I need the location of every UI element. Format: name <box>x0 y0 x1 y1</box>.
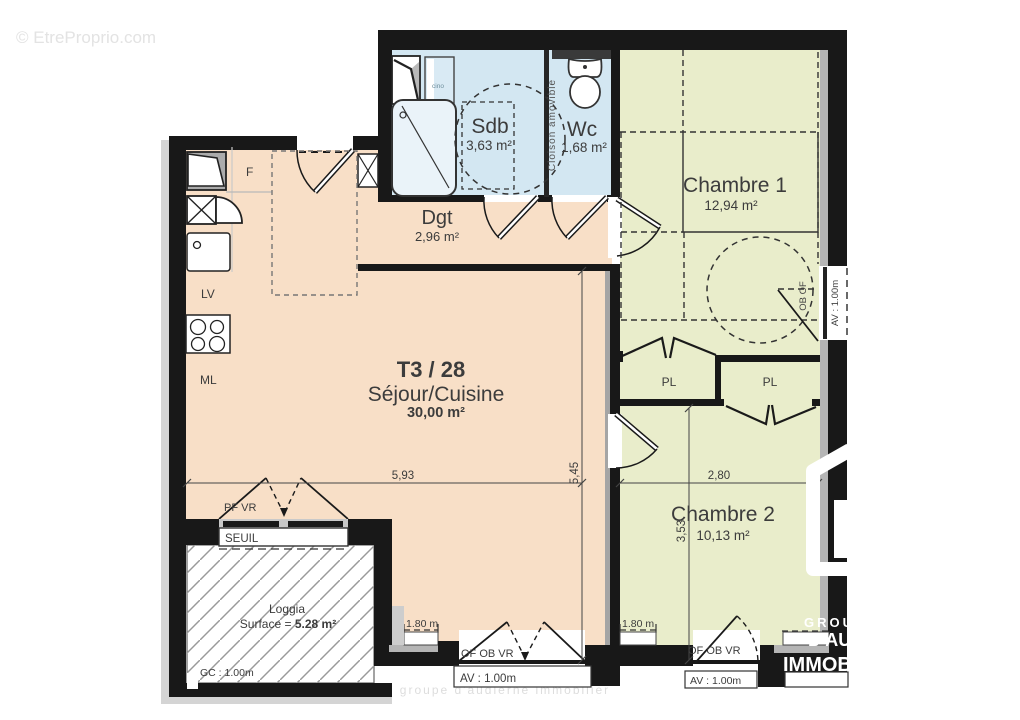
svg-text:Dgt: Dgt <box>421 207 453 229</box>
svg-text:PF VR: PF VR <box>224 502 256 514</box>
svg-text:ML: ML <box>200 373 217 387</box>
svg-text:Séjour/Cuisine: Séjour/Cuisine <box>368 383 505 406</box>
svg-text:LV: LV <box>201 287 215 301</box>
svg-text:1.80 m: 1.80 m <box>622 618 654 630</box>
svg-text:PL: PL <box>662 375 677 389</box>
svg-text:Surface = 5.28 m²: Surface = 5.28 m² <box>240 617 336 631</box>
svg-text:OF OB VR: OF OB VR <box>688 645 741 657</box>
svg-text:2,80: 2,80 <box>708 470 730 482</box>
svg-text:Sdb: Sdb <box>471 115 508 138</box>
svg-text:GC : 1.00m: GC : 1.00m <box>200 667 254 679</box>
svg-text:5,45: 5,45 <box>569 462 581 484</box>
svg-text:SEUIL: SEUIL <box>225 533 259 545</box>
svg-text:3,63 m²: 3,63 m² <box>466 138 512 153</box>
svg-text:AV : 1.00m: AV : 1.00m <box>690 675 741 687</box>
svg-text:F: F <box>246 165 253 179</box>
svg-text:OF OB VR: OF OB VR <box>461 648 514 660</box>
svg-text:PL: PL <box>763 375 778 389</box>
svg-text:Loggia: Loggia <box>269 602 305 616</box>
svg-text:Wc: Wc <box>567 118 597 141</box>
svg-text:AV : 1.00m: AV : 1.00m <box>830 280 841 326</box>
svg-text:30,00 m²: 30,00 m² <box>407 405 465 421</box>
svg-text:Cloison amovible: Cloison amovible <box>547 79 558 171</box>
svg-text:GROUP: GROUP <box>804 615 867 630</box>
svg-text:IMMOB: IMMOB <box>783 654 852 676</box>
svg-text:2,96 m²: 2,96 m² <box>415 229 460 244</box>
svg-text:3,53: 3,53 <box>676 520 688 542</box>
svg-text:1,68 m²: 1,68 m² <box>561 140 607 155</box>
svg-text:10,13 m²: 10,13 m² <box>696 528 750 543</box>
svg-text:1.80 m: 1.80 m <box>406 618 438 630</box>
svg-text:© EtreProprio.com: © EtreProprio.com <box>16 28 156 47</box>
svg-text:OB OF: OB OF <box>798 281 809 311</box>
svg-text:D'AUD: D'AUD <box>808 630 864 650</box>
svg-text:cino: cino <box>432 83 444 90</box>
svg-text:5,93: 5,93 <box>392 470 414 482</box>
svg-text:Chambre 1: Chambre 1 <box>683 174 787 197</box>
svg-text:12,94 m²: 12,94 m² <box>704 198 758 213</box>
svg-text:AV : 1.00m: AV : 1.00m <box>460 673 516 685</box>
svg-text:T3 / 28: T3 / 28 <box>397 357 465 382</box>
